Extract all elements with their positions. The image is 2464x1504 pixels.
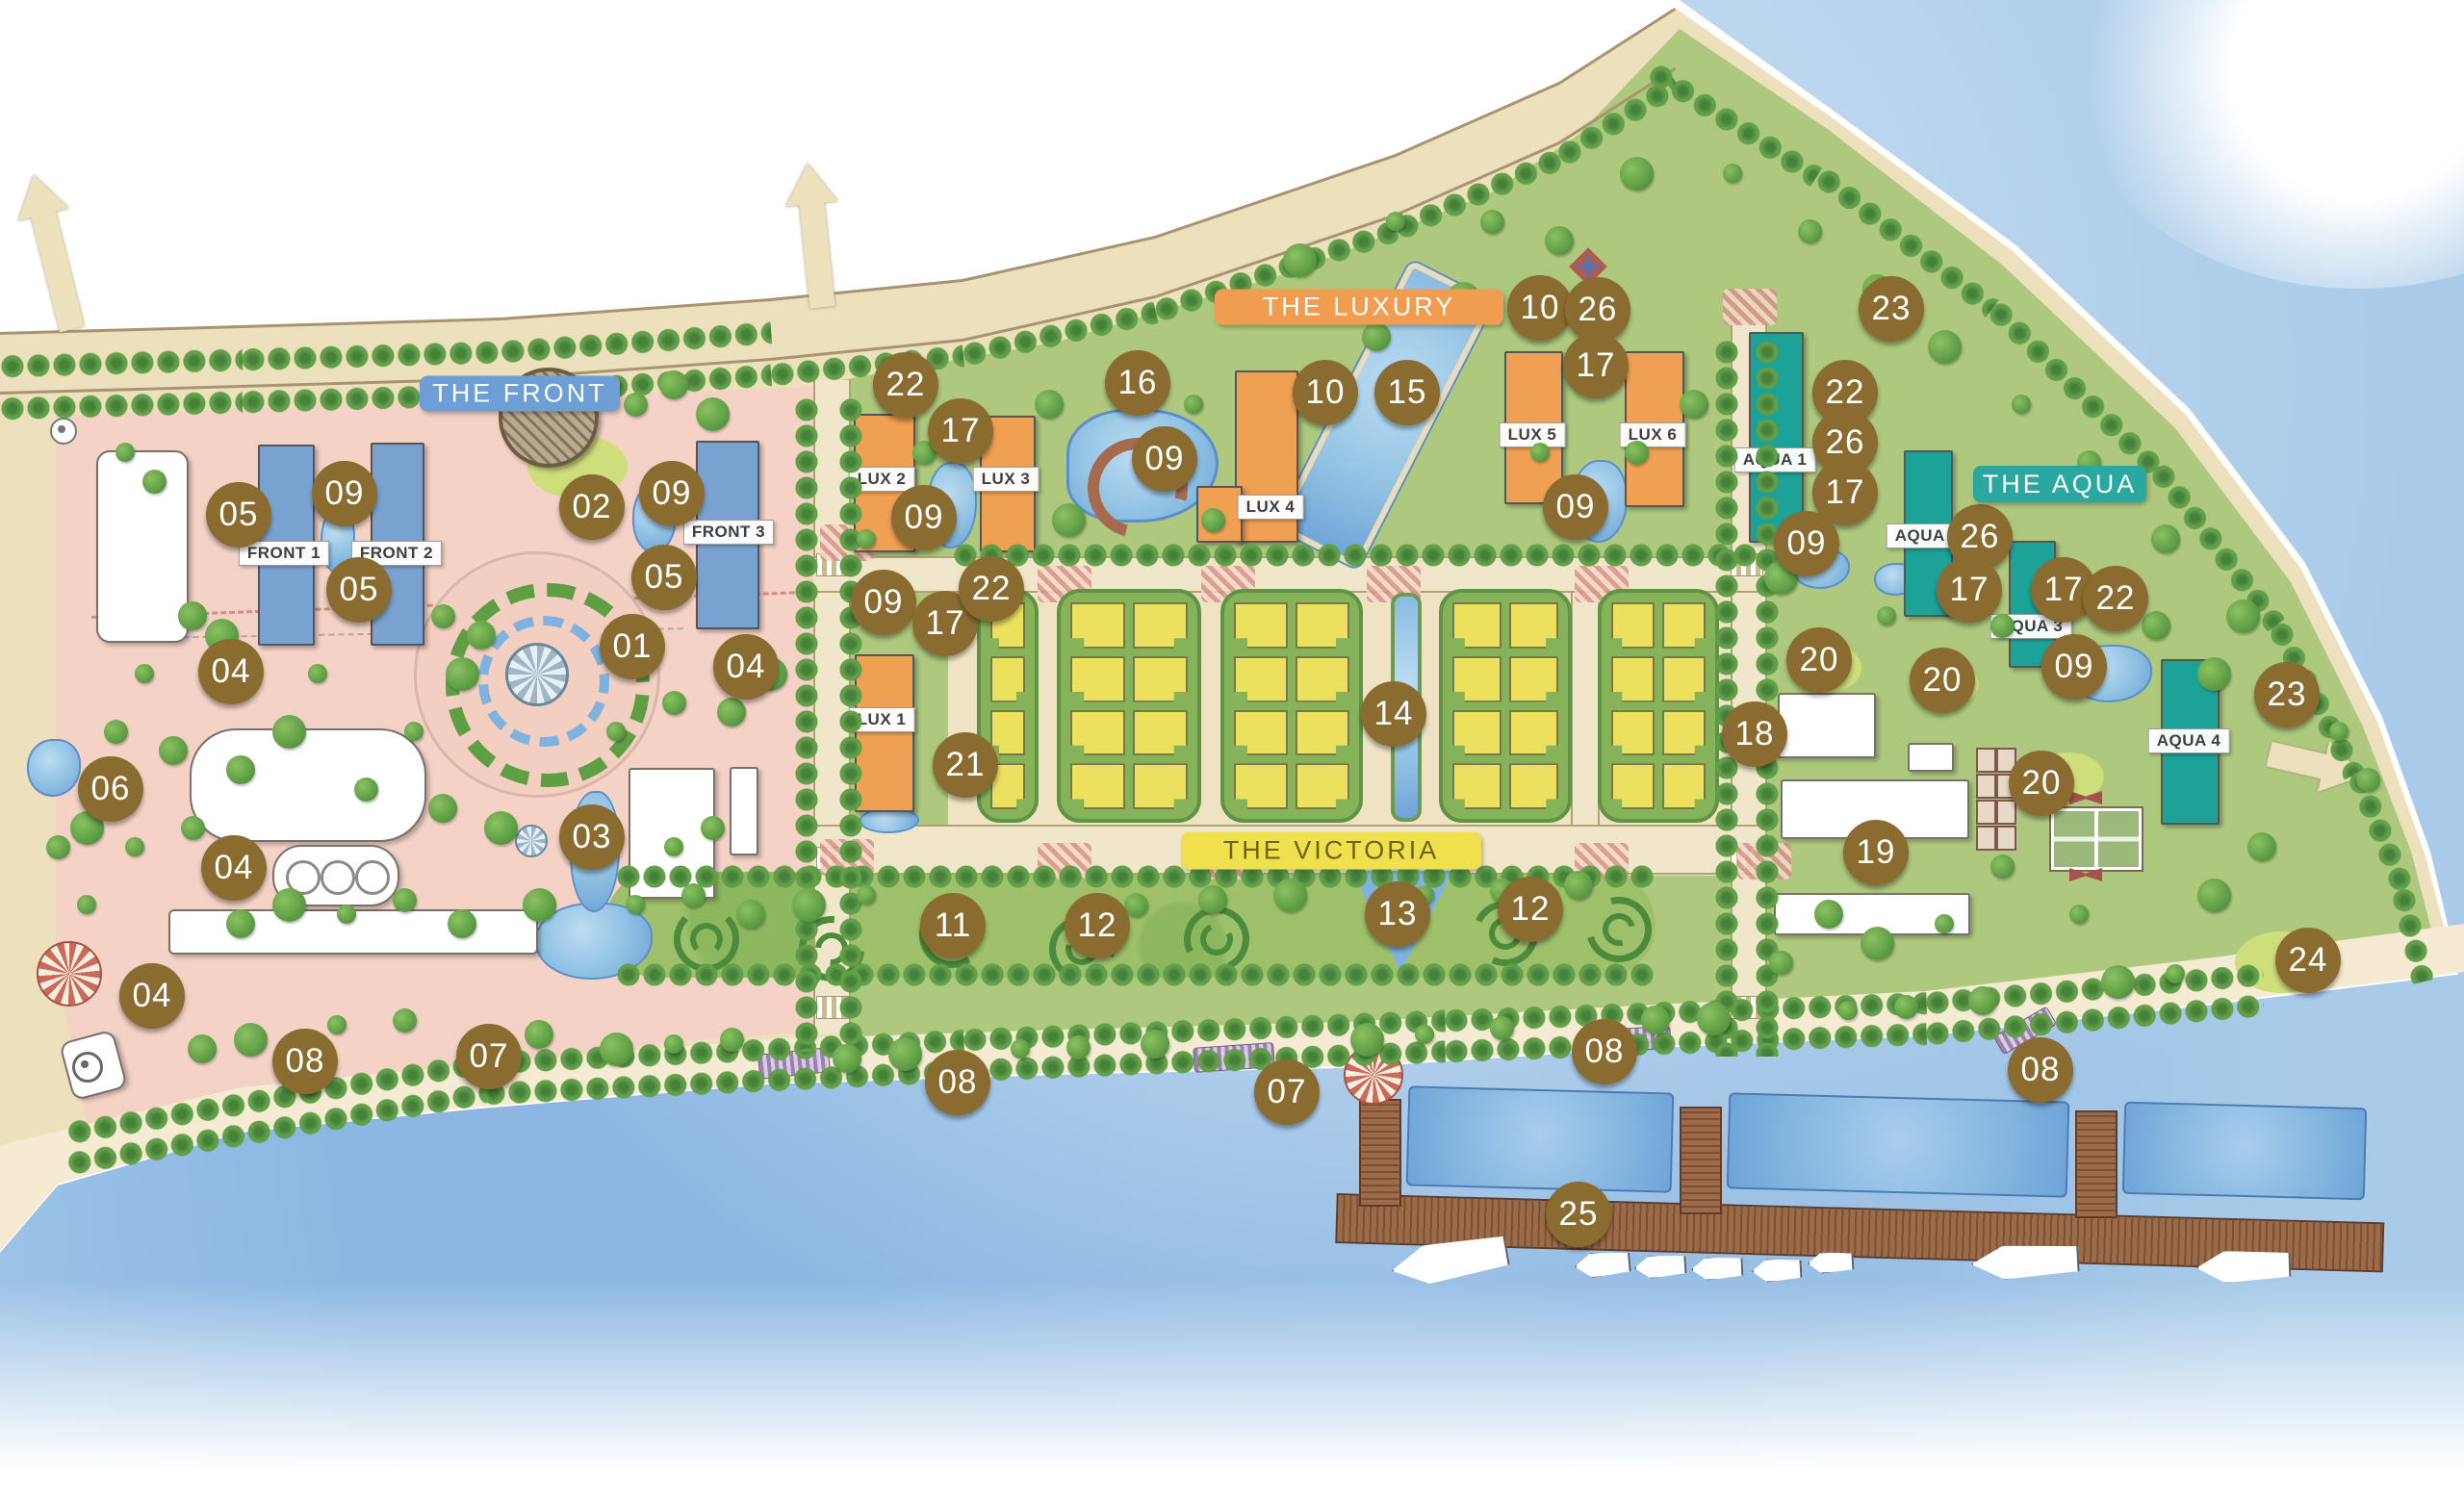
tree-icon [226, 909, 255, 938]
tree-icon [664, 1034, 683, 1054]
townhouse-unit [990, 710, 1025, 756]
north-entry-arrow-mid [782, 161, 848, 310]
tree-icon [1680, 390, 1708, 419]
plaza-fountain [505, 643, 569, 706]
tree-icon [446, 657, 479, 691]
tree-icon [77, 895, 96, 914]
marina-basin [1727, 1092, 2069, 1197]
tree-icon [337, 905, 356, 924]
townhouse-unit [1662, 656, 1706, 702]
tree-icon [624, 393, 648, 417]
tree-icon [1198, 885, 1227, 914]
building-label-aqua-4: AQUA 4 [2148, 728, 2230, 753]
marker-04[interactable]: 04 [119, 963, 185, 1029]
tree-icon [178, 601, 207, 630]
tree-icon [354, 777, 378, 802]
arrow-head-icon [782, 161, 837, 206]
tree-icon [664, 837, 683, 856]
townhouse-unit [1452, 710, 1501, 756]
townhouse-unit [1452, 602, 1501, 649]
marina-pier-arm [1359, 1099, 1401, 1207]
tree-icon [234, 1023, 268, 1057]
tree-icon [1350, 1023, 1384, 1057]
tree-icon [2101, 965, 2135, 999]
tree-row [953, 543, 1761, 568]
tree-icon [188, 1034, 217, 1063]
townhouse-unit [1133, 656, 1188, 702]
tree-icon [662, 691, 686, 715]
tree-icon [431, 604, 455, 628]
townhouse-unit [1509, 656, 1558, 702]
white-building[interactable] [1908, 743, 1954, 772]
paper-fade-bottom [0, 1280, 2464, 1504]
townhouse-unit [1611, 763, 1655, 809]
tree-icon [1697, 1002, 1731, 1035]
marker-22[interactable]: 22 [873, 352, 938, 418]
marina-basin [2122, 1102, 2367, 1201]
lighthouse-dot-icon [81, 1060, 89, 1068]
marker-05[interactable]: 05 [326, 557, 392, 623]
tree-icon [2197, 657, 2231, 691]
tree-icon [2012, 395, 2031, 414]
tree-icon [1035, 390, 1064, 419]
marker-10[interactable]: 10 [1293, 360, 1358, 425]
tree-icon [1928, 330, 1962, 364]
tree-icon [1386, 212, 1405, 231]
townhouse-unit [1234, 656, 1288, 702]
lighthouse-icon [72, 1052, 103, 1083]
tree-row [838, 397, 863, 1052]
townhouse-unit [1070, 656, 1125, 702]
townhouse-unit [1611, 656, 1655, 702]
tree-icon [2197, 879, 2231, 912]
tree-icon [701, 816, 725, 840]
townhouse-unit [1296, 602, 1349, 649]
tree-icon [1814, 900, 1843, 929]
townhouse-unit [1234, 710, 1288, 756]
tree-icon [2329, 722, 2348, 741]
tree-icon [2142, 611, 2170, 640]
tree-icon [327, 1015, 346, 1034]
townhouse-unit [990, 656, 1025, 702]
marker-21[interactable]: 21 [933, 732, 998, 798]
marker-15[interactable]: 15 [1374, 360, 1440, 425]
paved-plaza [1723, 289, 1777, 325]
marker-23[interactable]: 23 [2254, 662, 2320, 727]
tree-icon [792, 888, 826, 922]
tree-icon [2166, 964, 2185, 983]
townhouse-unit [1070, 602, 1125, 649]
tree-icon [404, 722, 423, 741]
marker-08[interactable]: 08 [925, 1050, 990, 1115]
canopy-loop-icon [355, 860, 390, 895]
marker-08[interactable]: 08 [2008, 1037, 2073, 1103]
zone-label-front[interactable]: THE FRONT [420, 376, 620, 412]
tree-icon [448, 909, 476, 938]
tree-icon [46, 835, 70, 859]
marker-20[interactable]: 20 [1786, 627, 1852, 693]
marker-04[interactable]: 04 [201, 835, 267, 901]
tree-icon [1861, 927, 1894, 960]
tree-icon [1838, 1001, 1858, 1020]
tree-icon [135, 664, 154, 683]
building-label-lux-5: LUX 5 [1500, 422, 1566, 447]
tree-icon [159, 736, 188, 765]
arrow-shaft [31, 210, 84, 333]
building-label-front-3: FRONT 3 [683, 520, 774, 545]
marker-17[interactable]: 17 [1563, 333, 1629, 398]
tree-icon [626, 895, 645, 914]
tree-row [1755, 340, 1780, 1057]
tree-icon [1480, 210, 1504, 234]
building-label-lux-3: LUX 3 [973, 467, 1039, 492]
townhouse-cluster[interactable] [1057, 589, 1201, 823]
townhouse-unit [1070, 763, 1125, 809]
marker-22[interactable]: 22 [2083, 566, 2148, 631]
zone-label-luxury[interactable]: THE LUXURY [1215, 290, 1503, 325]
tree-icon [857, 885, 876, 905]
tree-row [1714, 340, 1739, 1057]
marker-13[interactable]: 13 [1365, 881, 1430, 947]
marker-18[interactable]: 18 [1722, 701, 1787, 767]
marker-24[interactable]: 24 [2275, 928, 2341, 993]
marker-11[interactable]: 11 [920, 893, 986, 958]
tree-icon [428, 794, 457, 823]
tennis-court [2051, 808, 2142, 870]
townhouse-unit [1234, 763, 1288, 809]
tree-icon [1141, 1030, 1169, 1058]
hedge-spiral-inner [690, 923, 723, 956]
tree-row [794, 397, 819, 1052]
tree-icon [696, 397, 730, 431]
arrow-shaft [2267, 742, 2328, 779]
marker-20[interactable]: 20 [1910, 648, 1975, 713]
hedge-spiral-inner [1597, 907, 1641, 952]
tree-icon [1769, 951, 1793, 975]
townhouse-unit [1611, 710, 1655, 756]
small-fountain [515, 825, 548, 857]
tree-icon [659, 370, 688, 399]
marker-02[interactable]: 02 [559, 474, 625, 540]
marker-09[interactable]: 09 [312, 461, 377, 526]
marker-20[interactable]: 20 [2009, 751, 2074, 816]
garden-villa [1976, 748, 2016, 773]
tree-icon [1990, 854, 2015, 879]
marker-05[interactable]: 05 [631, 545, 697, 610]
townhouse-unit [1133, 602, 1188, 649]
tree-icon [1935, 914, 1954, 933]
tree-icon [1490, 1016, 1514, 1040]
marker-23[interactable]: 23 [1859, 276, 1924, 342]
townhouse-unit [1296, 656, 1349, 702]
zone-label-victoria[interactable]: THE VICTORIA [1181, 832, 1481, 870]
marker-03[interactable]: 03 [559, 804, 625, 870]
garden-villa [1976, 800, 2016, 825]
townhouse-unit [1133, 763, 1188, 809]
townhouse-unit [1133, 710, 1188, 756]
canopy-loop-icon [321, 860, 355, 895]
marker-17[interactable]: 17 [928, 398, 993, 464]
tree-icon [1201, 508, 1225, 532]
marker-16[interactable]: 16 [1105, 350, 1170, 416]
tree-icon [115, 443, 135, 462]
tree-icon [467, 621, 496, 650]
tree-icon [1968, 986, 1997, 1015]
compass-dot-icon [58, 425, 65, 433]
tree-icon [523, 888, 556, 922]
tree-icon [2247, 832, 2276, 861]
tree-icon [1184, 395, 1203, 414]
townhouse-unit [1296, 710, 1349, 756]
tree-icon [1283, 243, 1317, 277]
townhouse-cluster[interactable] [1439, 589, 1572, 823]
marker-05[interactable]: 05 [206, 482, 271, 548]
tree-icon [1894, 995, 1918, 1019]
marker-09[interactable]: 09 [851, 570, 916, 635]
tree-icon [1362, 322, 1391, 351]
marker-01[interactable]: 01 [600, 614, 665, 679]
tree-icon [393, 1008, 417, 1032]
townhouse-unit [1296, 763, 1349, 809]
tree-icon [484, 811, 518, 845]
townhouse-unit [1452, 656, 1501, 702]
townhouse-cluster[interactable] [1220, 589, 1363, 823]
townhouse-unit [1509, 602, 1558, 649]
tree-icon [125, 837, 144, 856]
tree-icon [525, 1020, 553, 1049]
marker-04[interactable]: 04 [198, 639, 264, 704]
tree-icon [1723, 164, 1742, 183]
road-victoria-minor [1571, 589, 1600, 825]
marker-04[interactable]: 04 [713, 634, 779, 700]
tree-icon [2151, 524, 2180, 553]
marker-07[interactable]: 07 [1254, 1059, 1320, 1125]
garden-villa [1976, 826, 2016, 851]
marker-19[interactable]: 19 [1843, 820, 1909, 885]
arrow-shaft [799, 200, 834, 308]
tree-icon [1066, 1035, 1091, 1059]
tree-icon [857, 529, 876, 548]
tree-icon [1545, 226, 1574, 255]
masterplan-map: FRONT 1FRONT 2FRONT 3LUX 1LUX 2LUX 3LUX … [0, 0, 2464, 1504]
townhouse-unit [1662, 602, 1706, 649]
north-entry-arrow-west [9, 168, 97, 335]
tree-icon [2069, 905, 2089, 924]
townhouse-cluster[interactable] [1598, 589, 1719, 823]
marker-14[interactable]: 14 [1361, 681, 1426, 747]
marker-12[interactable]: 12 [1498, 877, 1563, 942]
townhouse-unit [1452, 763, 1501, 809]
striped-canopy [37, 941, 102, 1007]
tree-icon [142, 470, 167, 494]
white-building[interactable] [1778, 693, 1876, 758]
marker-22[interactable]: 22 [959, 556, 1024, 622]
townhouse-unit [1611, 602, 1655, 649]
marker-09[interactable]: 09 [1774, 511, 1839, 576]
hedge-spiral-inner [1195, 918, 1238, 960]
white-building[interactable] [730, 767, 758, 855]
tree-icon [717, 698, 746, 727]
townhouse-unit [1509, 710, 1558, 756]
marker-25[interactable]: 25 [1546, 1182, 1611, 1247]
townhouse-unit [1509, 763, 1558, 809]
tree-icon [2226, 599, 2260, 633]
marker-09[interactable]: 09 [639, 461, 705, 526]
marker-09[interactable]: 09 [891, 485, 957, 550]
tree-icon [272, 715, 306, 749]
marker-08[interactable]: 08 [1572, 1019, 1637, 1084]
marina-basin [1406, 1085, 1675, 1192]
white-building[interactable] [190, 728, 426, 842]
townhouse-unit [1662, 763, 1706, 809]
tree-icon [1620, 157, 1654, 191]
tree-icon [104, 720, 128, 744]
tree-icon [888, 1037, 922, 1071]
tree-row [616, 962, 1655, 987]
marker-09[interactable]: 09 [1543, 474, 1608, 540]
tree-icon [1798, 219, 1822, 243]
tree-icon [681, 883, 706, 907]
tree-icon [606, 722, 626, 741]
tree-icon [2356, 768, 2380, 792]
building-lux-1[interactable] [855, 654, 914, 812]
tree-icon [1641, 1006, 1670, 1034]
tree-icon [226, 755, 255, 784]
tree-icon [1011, 1039, 1030, 1058]
marker-08[interactable]: 08 [272, 1029, 338, 1094]
tree-icon [720, 1028, 744, 1052]
townhouse-unit [1234, 602, 1288, 649]
marker-07[interactable]: 07 [456, 1024, 522, 1089]
marina-pier-arm [2075, 1110, 2117, 1218]
townhouse-unit [1662, 710, 1706, 756]
tree-icon [272, 888, 306, 922]
tree-icon [393, 888, 417, 912]
tree-icon [1052, 503, 1086, 537]
tree-icon [736, 900, 765, 929]
townhouse-unit [1070, 710, 1125, 756]
marker-09[interactable]: 09 [2041, 634, 2107, 700]
tree-icon [1877, 606, 1896, 625]
marker-17[interactable]: 17 [1937, 557, 2002, 623]
tree-icon [1564, 871, 1593, 900]
marker-10[interactable]: 10 [1507, 275, 1573, 341]
tree-icon [1273, 879, 1307, 912]
tree-icon [181, 816, 205, 840]
tree-icon [1990, 614, 2015, 638]
marina-pier-arm [1680, 1107, 1722, 1214]
marker-06[interactable]: 06 [78, 756, 143, 822]
tree-icon [308, 664, 327, 683]
tree-icon [833, 1044, 861, 1073]
building-label-lux-4: LUX 4 [1238, 495, 1304, 520]
tree-icon [1415, 1025, 1434, 1044]
zone-label-aqua[interactable]: THE AQUA [1973, 466, 2146, 502]
marker-12[interactable]: 12 [1065, 893, 1130, 958]
marker-09[interactable]: 09 [1132, 426, 1197, 492]
tree-icon [1530, 443, 1550, 462]
tree-icon [1625, 441, 1649, 465]
tree-icon [600, 1032, 633, 1066]
